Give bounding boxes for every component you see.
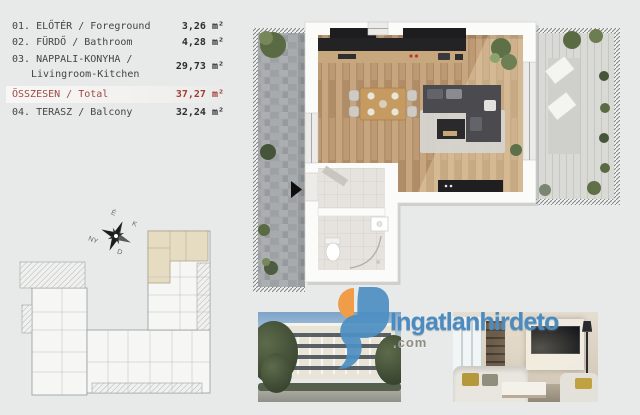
legend-label-line2: Livingroom-Kitchen — [12, 67, 162, 82]
bathroom — [318, 216, 388, 270]
ingatlanhirdeto-logo-icon — [328, 286, 394, 370]
toilet — [326, 243, 340, 261]
tv-console — [438, 180, 503, 192]
legend-row-balcony: 04. TERASZ / Balcony 32,24 m² — [12, 104, 224, 120]
legend-row-livingroom-kitchen: 03. NAPPALI-KONYHA /Livingroom-Kitchen 2… — [12, 50, 224, 83]
right-terrace — [536, 28, 620, 205]
legend-value: 3,26 m² — [162, 21, 224, 32]
left-wing — [32, 288, 87, 395]
stove-icon — [409, 54, 412, 57]
building-key-plan — [3, 228, 215, 403]
legend-row-foreground: 01. ELŐTÉR / Foreground 3,26 m² — [12, 18, 224, 34]
coffee-table — [437, 119, 465, 139]
railing-right — [614, 28, 620, 205]
logo-sun-shape — [338, 288, 354, 320]
legend-value: 4,28 m² — [162, 37, 224, 48]
legend-label: ÖSSZESEN / Total — [12, 89, 108, 100]
legend-row-bathroom: 02. FÜRDŐ / Bathroom 4,28 m² — [12, 34, 224, 50]
legend-label: 02. FÜRDŐ / Bathroom — [12, 37, 132, 48]
legend-value: 32,24 m² — [162, 107, 224, 118]
legend-value: 37,27 m² — [162, 89, 224, 100]
railing-bottom — [536, 199, 620, 205]
legend-value: 29,73 m² — [162, 61, 224, 72]
legend-label: 03. NAPPALI-KONYHA / — [12, 54, 132, 65]
apartment — [305, 22, 539, 285]
entry-hall — [318, 166, 385, 216]
brand-tld: .com — [393, 335, 427, 350]
brand-name: Ingatlanhirdeto — [390, 308, 559, 337]
railing-top — [536, 28, 620, 33]
floorplan-3d — [253, 0, 625, 300]
area-legend: 01. ELŐTÉR / Foreground 3,26 m² 02. FÜRD… — [12, 18, 224, 120]
railing-left — [253, 28, 258, 292]
legend-label: 04. TERASZ / Balcony — [12, 107, 132, 118]
listing-flyer: 01. ELŐTÉR / Foreground 3,26 m² 02. FÜRD… — [0, 0, 640, 415]
entrance-door — [305, 173, 318, 201]
sink-icon — [438, 53, 450, 60]
legend-row-total: ÖSSZESEN / Total 37,27 m² — [6, 86, 230, 103]
legend-label: 01. ELŐTÉR / Foreground — [12, 21, 150, 32]
left-terrace — [253, 28, 305, 292]
